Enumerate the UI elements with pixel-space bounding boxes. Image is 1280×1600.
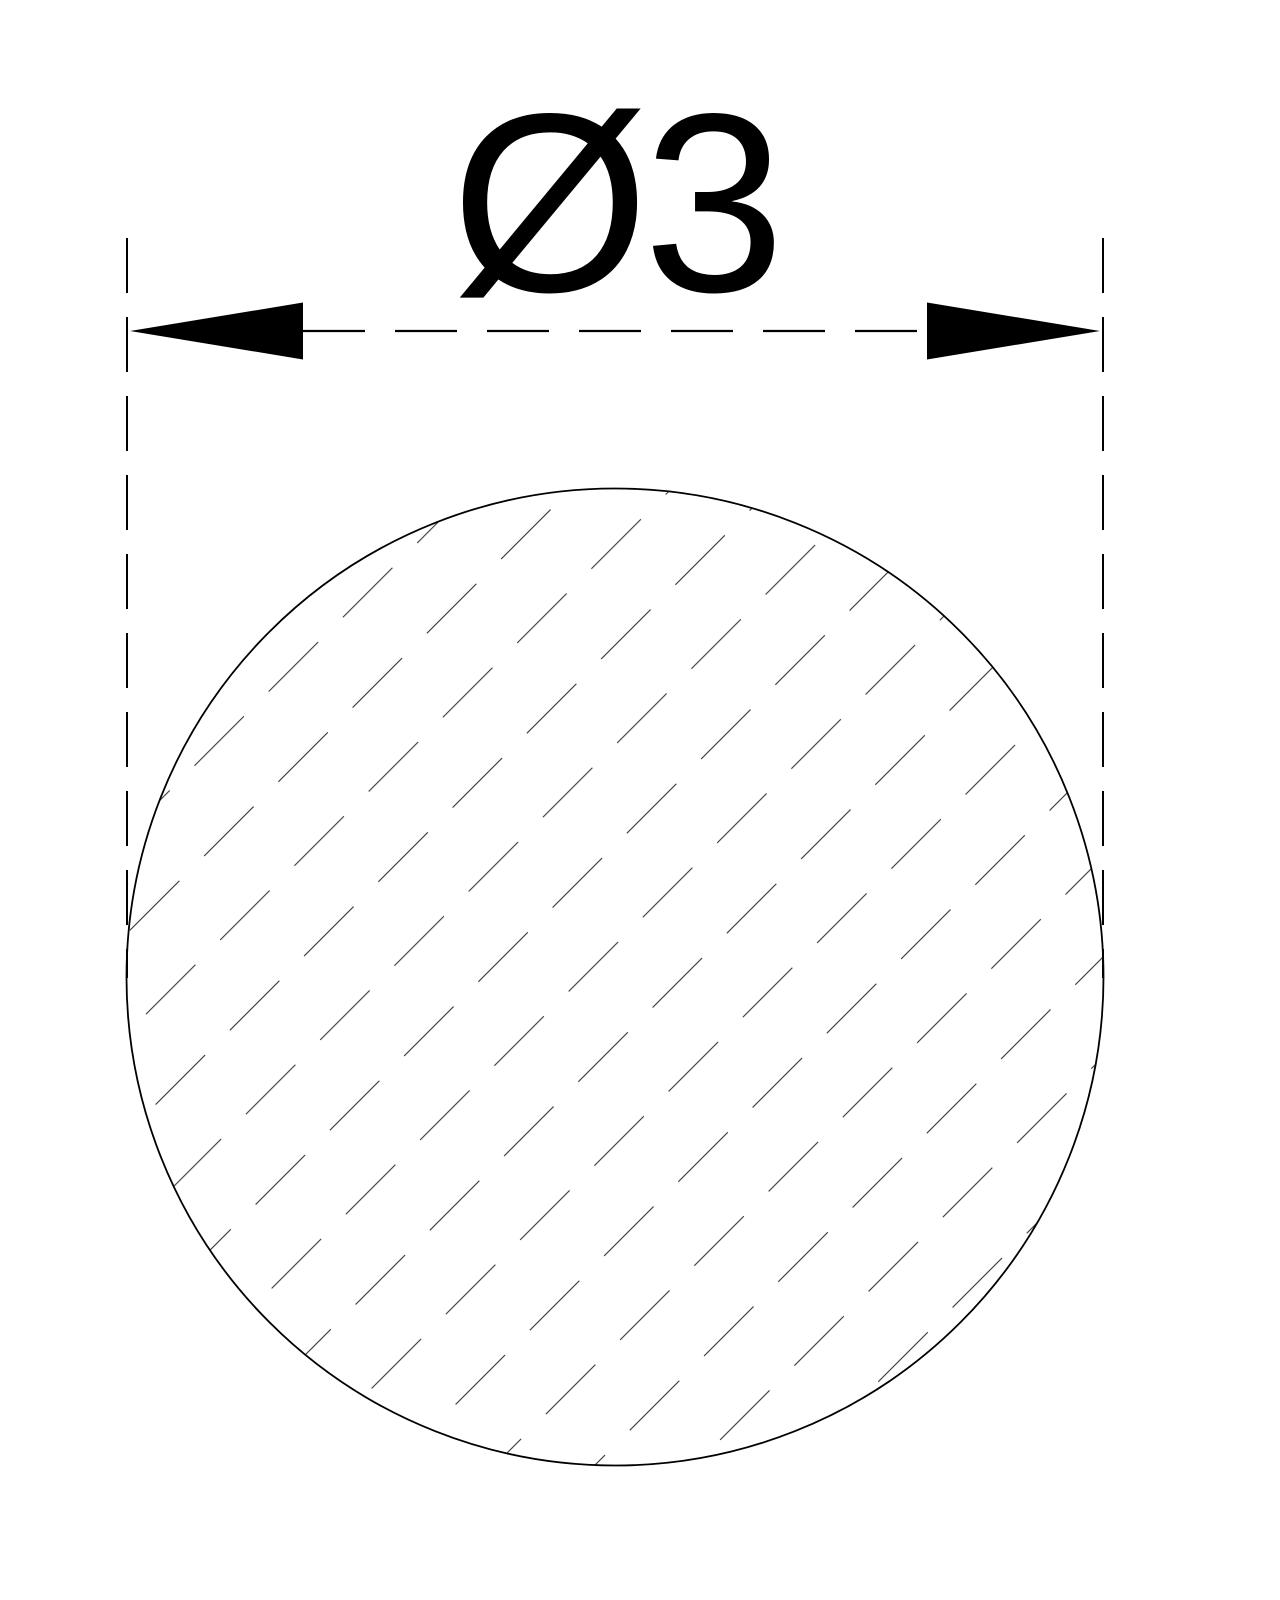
dimension-arrow-left-icon — [130, 303, 303, 360]
diameter-dimension-label: Ø3 — [451, 61, 779, 346]
technical-drawing: Ø3 — [0, 0, 1280, 1600]
dimension-arrow-right-icon — [927, 303, 1100, 360]
drawing-canvas: Ø3 — [0, 0, 1280, 1600]
section-circle — [127, 489, 1104, 1466]
